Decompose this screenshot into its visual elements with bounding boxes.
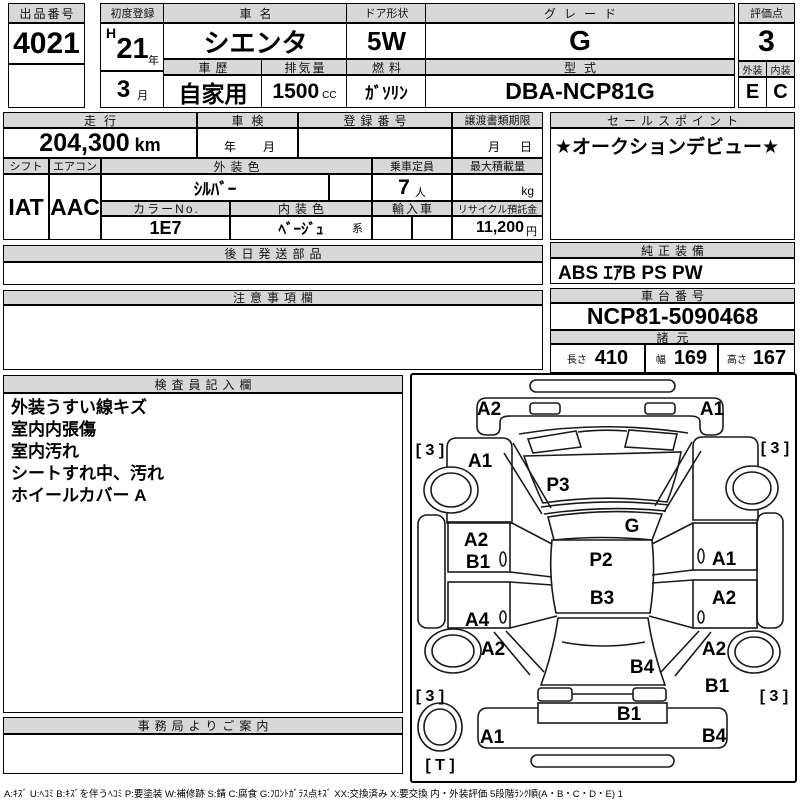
- mileage-value: 204,300: [39, 129, 129, 158]
- later-parts-cell: [3, 262, 543, 285]
- grille-line: [578, 430, 627, 432]
- transfer-deadline-cell: 月 日: [452, 128, 543, 158]
- panel-label-rear-door-right: A2: [712, 588, 736, 609]
- recycle-deposit-value: 11,200: [476, 219, 524, 237]
- exterior-color-header: 外装色: [101, 158, 372, 174]
- fuel-header: 燃料: [346, 59, 427, 75]
- later-parts-header: 後日発送部品: [3, 245, 543, 262]
- inspection-month-unit: 月: [263, 138, 275, 155]
- rear-garnish-strip: [531, 755, 674, 767]
- first-registration-header: 初度登録: [100, 3, 165, 23]
- windshield: [548, 512, 662, 540]
- history-header: 車歴: [163, 59, 263, 75]
- exterior-score-header: 外装: [738, 61, 767, 77]
- interior-color-cell: ﾍﾞｰｼﾞｭ 系: [230, 216, 372, 240]
- cowl-line-1: [541, 502, 669, 507]
- left-connector-lines: [510, 522, 557, 628]
- model-code-header: 型式: [425, 59, 735, 75]
- panel-label-rear-window: B4: [630, 657, 655, 678]
- inspector-notes-header: 検査員記入欄: [3, 375, 403, 393]
- inspection-header: 車検: [197, 112, 298, 128]
- panel-label-front-bumper-left: A2: [477, 399, 501, 420]
- transfer-day-unit: 日: [520, 138, 532, 155]
- history-value: 自家用: [163, 75, 263, 108]
- door-shape-value: 5W: [346, 23, 427, 59]
- front-bumper-detail-right: [645, 403, 675, 414]
- inspection-cell: 年 月: [197, 128, 298, 158]
- model-code-value: DBA-NCP81G: [425, 75, 735, 108]
- capacity-unit: 人: [415, 184, 426, 200]
- payload-cell: kg: [452, 174, 543, 201]
- inspection-year-unit: 年: [224, 138, 236, 155]
- tire-grade-front-left: [ 3 ]: [416, 442, 444, 459]
- door-handle: [500, 611, 506, 623]
- import-cell-2: [412, 216, 452, 240]
- aircon-header: エアコン: [49, 158, 101, 174]
- displacement-unit: CC: [322, 90, 336, 101]
- recycle-deposit-unit: 円: [526, 223, 537, 239]
- era-letter: H: [106, 25, 116, 41]
- spare-tire-label: [ T ]: [425, 757, 454, 774]
- auction-sheet: 出品番号 4021 初度登録 H 21 年 3 月 車名 シエンタ 車歴 自家用…: [0, 0, 800, 800]
- tire-grade-rear-left: [ 3 ]: [416, 688, 444, 705]
- car-name-header: 車名: [163, 3, 348, 23]
- grade-value: G: [425, 23, 735, 59]
- height-label: 高さ: [727, 351, 747, 366]
- quarter-connector-lines: [494, 631, 711, 676]
- registration-number-cell: [298, 128, 452, 158]
- panel-label-roof-front: P2: [589, 550, 612, 571]
- damage-code-legend: A:ｷｽﾞ U:ﾍｺﾐ B:ｷｽﾞを伴うﾍｺﾐ P:要塗装 W:補修跡 S:錆 …: [4, 786, 796, 800]
- chassis-number-value: NCP81-5090468: [550, 303, 795, 330]
- taillight-left: [538, 688, 572, 701]
- length-label: 長さ: [567, 351, 587, 366]
- grade-header: グレード: [425, 3, 735, 23]
- car-diagram-svg: A2 A1 A1 P3 G A2 B1 P2 A1 B3 A2 A4 A2 A2…: [412, 375, 795, 781]
- first-registration-month: 3: [117, 76, 130, 104]
- lot-number-header: 出品番号: [8, 3, 85, 23]
- inspector-note-line: 室内内張傷: [11, 419, 96, 441]
- panel-label-quarter-right-lower: B1: [705, 676, 730, 697]
- score-value: 3: [738, 23, 795, 61]
- exterior-color-empty-cell: [329, 174, 372, 201]
- capacity-value: 7: [398, 176, 410, 200]
- inspector-notes-cell: 外装うすい線キズ 室内内張傷 室内汚れ シートすれ中、汚れ ホイールカバー A: [3, 393, 403, 713]
- sales-point-value: ★オークションデビュー★: [551, 129, 783, 162]
- door-handle: [698, 549, 704, 563]
- office-info-cell: [3, 734, 403, 774]
- panel-label-rear-bumper-left: A1: [480, 727, 505, 748]
- chassis-number-header: 車台番号: [550, 288, 795, 303]
- panel-label-front-door-right: A1: [712, 549, 737, 570]
- rocker-right: [757, 513, 783, 628]
- equipment-header: 純正装備: [550, 242, 795, 258]
- door-handle: [500, 552, 506, 566]
- fuel-value: ｶﾞｿﾘﾝ: [346, 75, 427, 108]
- panel-label-rear-door-left: A4: [465, 610, 490, 631]
- transfer-month-unit: 月: [488, 138, 500, 155]
- transfer-deadline-header: 譲渡書類期限: [452, 112, 543, 128]
- tire-grade-front-right: [ 3 ]: [761, 440, 789, 457]
- interior-color-header: 内装色: [230, 201, 372, 216]
- panel-label-tailgate: B1: [617, 704, 642, 725]
- front-bumper-detail-left: [530, 403, 560, 414]
- tire-grade-rear-right: [ 3 ]: [760, 688, 788, 705]
- mileage-header: 走行: [3, 112, 197, 128]
- tailgate: [538, 703, 667, 723]
- first-registration-month-cell: 3 月: [100, 71, 165, 108]
- recycle-deposit-cell: 11,200 円: [452, 216, 543, 240]
- color-no-value: 1E7: [101, 216, 230, 240]
- headlight-left: [528, 431, 581, 453]
- displacement-cell: 1500 CC: [261, 75, 348, 108]
- front-edge-strip: [530, 380, 675, 392]
- car-name-value: シエンタ: [163, 23, 348, 59]
- car-damage-diagram: A2 A1 A1 P3 G A2 B1 P2 A1 B3 A2 A4 A2 A2…: [410, 373, 797, 783]
- panel-label-front-door-left-upper: A2: [464, 530, 488, 551]
- import-header: 輸入車: [372, 201, 452, 216]
- width-value: 169: [674, 347, 707, 370]
- right-connector-lines: [649, 523, 693, 628]
- cautions-header: 注意事項欄: [3, 290, 543, 305]
- displacement-header: 排気量: [261, 59, 348, 75]
- payload-unit: kg: [521, 184, 534, 198]
- inspector-note-line: シートすれ中、汚れ: [11, 463, 164, 485]
- panel-label-front-door-left-lower: B1: [466, 552, 491, 573]
- interior-score-value: C: [766, 77, 795, 108]
- specs-header: 諸元: [550, 330, 795, 344]
- shift-value: IAT: [3, 174, 49, 240]
- spec-width-cell: 幅 169: [645, 344, 718, 373]
- lot-number-value: 4021: [8, 23, 85, 64]
- aircon-value: AAC: [49, 174, 101, 240]
- panel-label-windshield: G: [625, 516, 640, 537]
- panel-label-quarter-right: A2: [702, 639, 726, 660]
- panel-label-front-bumper-right: A1: [700, 399, 725, 420]
- capacity-header: 乗車定員: [372, 158, 452, 174]
- exterior-color-value: ｼﾙﾊﾞｰ: [101, 174, 329, 201]
- front-left-wheel: [424, 467, 478, 513]
- payload-header: 最大積載量: [452, 158, 543, 174]
- height-value: 167: [753, 347, 786, 370]
- taillight-right: [633, 688, 666, 701]
- panel-label-quarter-left: A2: [481, 639, 505, 660]
- panel-label-roof-rear: B3: [590, 588, 614, 609]
- color-no-header: カラーNo.: [101, 201, 230, 216]
- score-header: 評価点: [738, 3, 795, 23]
- panel-label-front-fender-left: A1: [468, 451, 493, 472]
- lot-empty-cell: [8, 64, 85, 108]
- width-label: 幅: [656, 351, 666, 366]
- panel-label-hood: P3: [546, 475, 569, 496]
- length-value: 410: [595, 347, 628, 370]
- registration-number-header: 登録番号: [298, 112, 452, 128]
- rear-window-line: [562, 642, 645, 646]
- interior-color-value: ﾍﾞｰｼﾞｭ: [278, 218, 323, 239]
- year-unit: 年: [148, 52, 159, 68]
- shift-header: シフト: [3, 158, 49, 174]
- sales-point-header: セールスポイント: [550, 112, 795, 128]
- cautions-cell: [3, 305, 543, 370]
- rocker-left: [418, 515, 445, 628]
- displacement-value: 1500: [272, 80, 319, 104]
- interior-color-suffix: 系: [352, 220, 363, 236]
- mileage-unit: km: [135, 135, 161, 156]
- spec-height-cell: 高さ 167: [718, 344, 795, 373]
- month-unit: 月: [137, 87, 148, 103]
- spare-tire-circle-inner: [424, 709, 456, 745]
- office-info-header: 事務局よりご案内: [3, 717, 403, 734]
- spec-length-cell: 長さ 410: [550, 344, 645, 373]
- interior-score-header: 内装: [766, 61, 795, 77]
- first-registration-year-cell: H 21 年: [100, 23, 165, 71]
- front-bumper: [477, 398, 723, 435]
- inspector-note-line: 室内汚れ: [11, 441, 79, 463]
- capacity-cell: 7 人: [372, 174, 452, 201]
- door-handle: [698, 611, 704, 623]
- inspector-note-line: ホイールカバー A: [11, 485, 147, 507]
- headlight-right: [625, 430, 677, 450]
- exterior-score-value: E: [738, 77, 767, 108]
- equipment-cell: ABS ｴｱB PS PW: [550, 258, 795, 284]
- import-cell-1: [372, 216, 412, 240]
- recycle-deposit-header: リサイクル預託金: [452, 201, 543, 216]
- inspector-note-line: 外装うすい線キズ: [11, 397, 147, 419]
- sales-point-cell: ★オークションデビュー★: [550, 128, 795, 240]
- first-registration-year: 21: [116, 33, 148, 66]
- equipment-value: ABS ｴｱB PS PW: [551, 258, 703, 285]
- door-shape-header: ドア形状: [346, 3, 427, 23]
- panel-label-rear-bumper-right: B4: [702, 726, 727, 747]
- mileage-cell: 204,300 km: [3, 128, 197, 158]
